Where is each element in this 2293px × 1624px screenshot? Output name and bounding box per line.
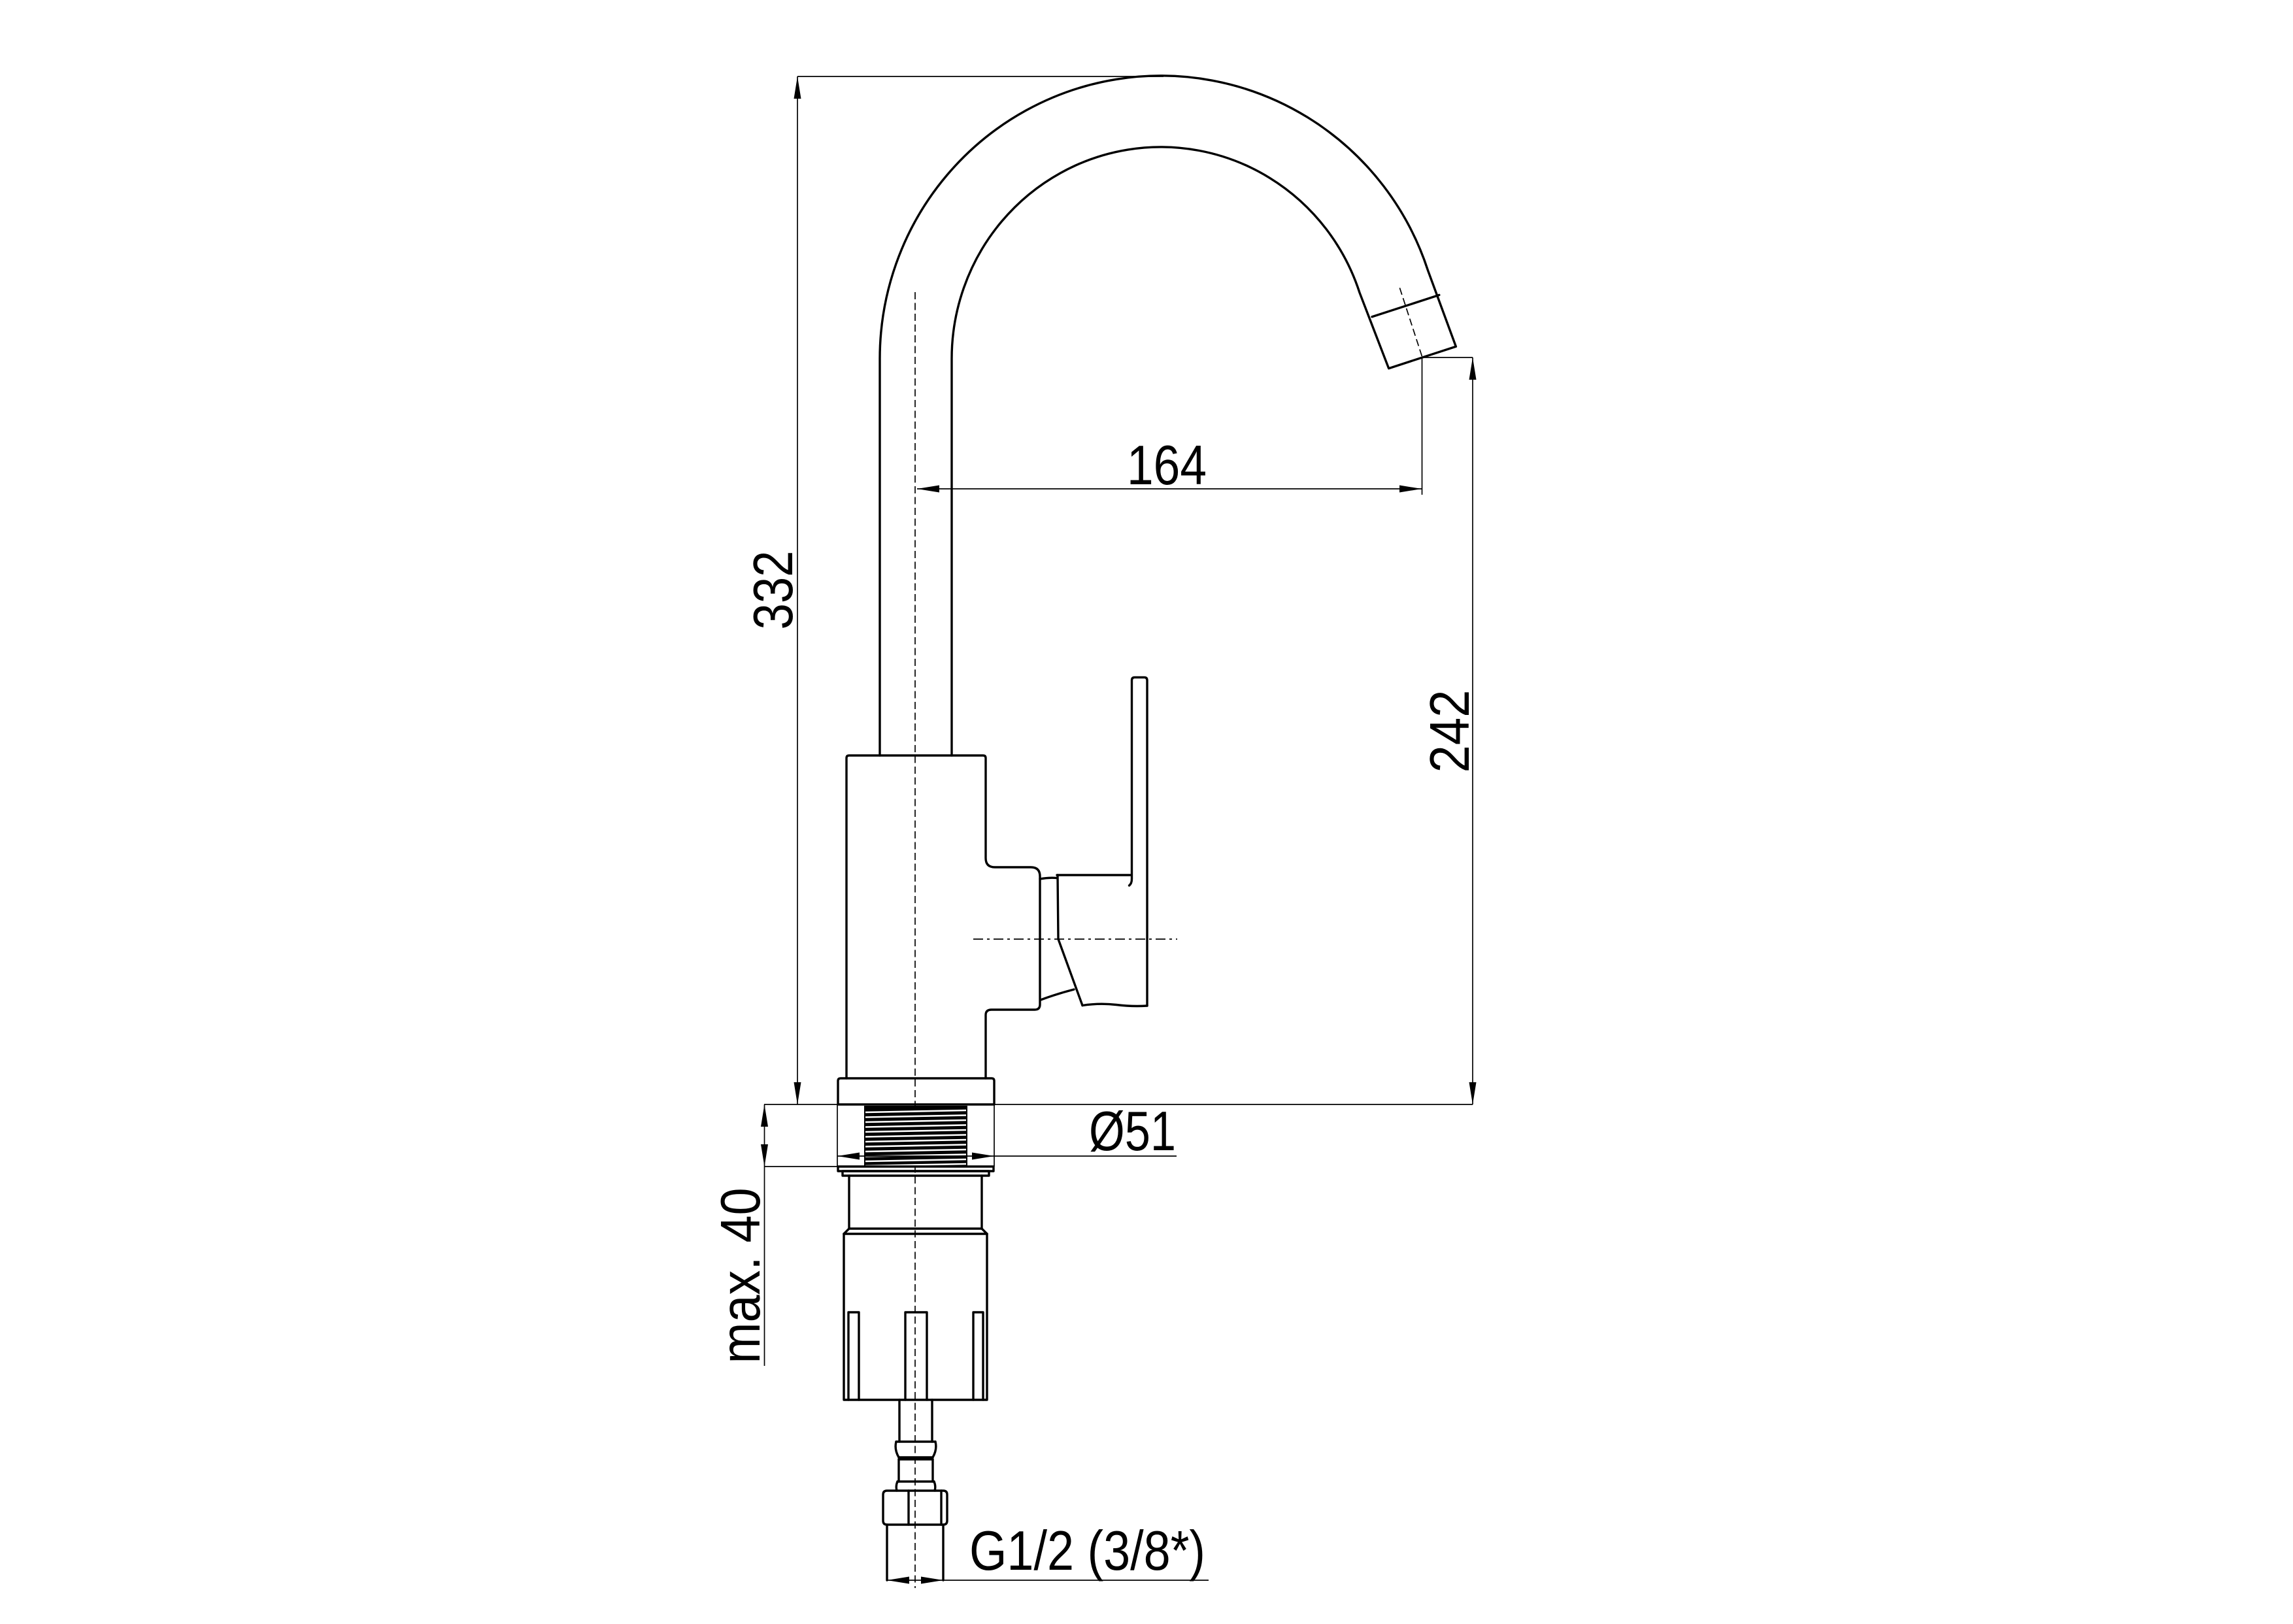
svg-text:242: 242 [1419, 690, 1481, 773]
svg-text:164: 164 [1127, 435, 1207, 497]
svg-text:max. 40: max. 40 [710, 1188, 772, 1364]
svg-text:Ø51: Ø51 [1089, 1101, 1176, 1163]
svg-text:G1/2 (3/8*): G1/2 (3/8*) [969, 1520, 1205, 1582]
svg-text:332: 332 [743, 551, 805, 630]
